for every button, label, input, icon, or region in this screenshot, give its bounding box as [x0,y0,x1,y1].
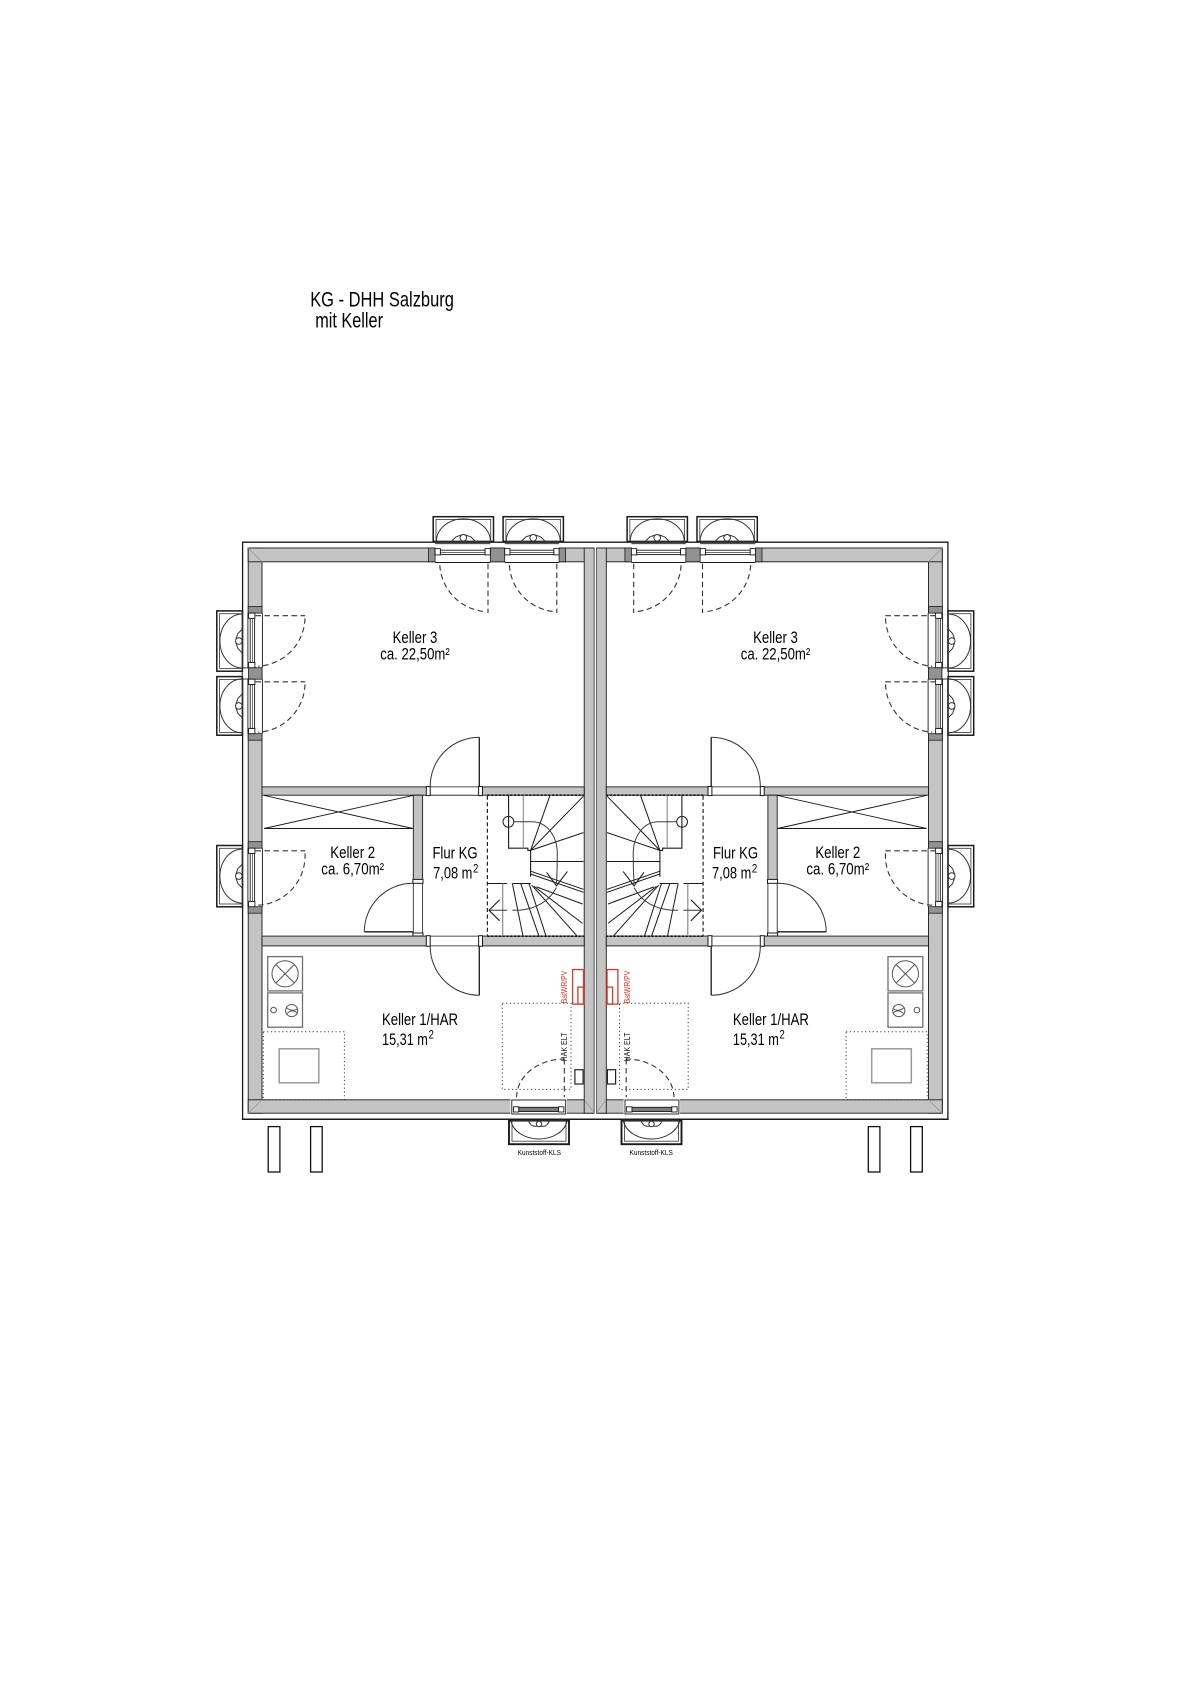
svg-text:Keller 2: Keller 2 [330,844,375,862]
svg-text:ca. 22,50m²: ca. 22,50m² [741,646,811,664]
svg-text:ca. 6,70m²: ca. 6,70m² [806,860,869,878]
svg-text:15,31 m: 15,31 m [382,1031,428,1049]
svg-text:mit Keller: mit Keller [315,310,383,333]
svg-text:2: 2 [779,1030,784,1042]
svg-text:BatWR/PV: BatWR/PV [622,971,632,1004]
svg-text:7,08 m: 7,08 m [433,865,472,883]
svg-text:Flur KG: Flur KG [432,845,477,863]
svg-text:Keller 1/HAR: Keller 1/HAR [382,1011,458,1029]
svg-text:Flur KG: Flur KG [713,845,758,863]
svg-text:2: 2 [473,863,478,875]
svg-text:HAK ELT: HAK ELT [622,1032,632,1062]
svg-text:Keller 3: Keller 3 [753,629,798,647]
svg-text:BatWR/PV: BatWR/PV [559,971,569,1004]
svg-text:HAK ELT: HAK ELT [559,1032,569,1062]
svg-text:Keller 1/HAR: Keller 1/HAR [733,1011,809,1029]
svg-text:Kunststoff-KLS: Kunststoff-KLS [630,1148,673,1157]
svg-text:7,08 m: 7,08 m [712,865,751,883]
svg-text:KG - DHH Salzburg: KG - DHH Salzburg [310,288,454,311]
svg-text:ca. 22,50m²: ca. 22,50m² [380,646,450,664]
svg-text:Kunststoff-KLS: Kunststoff-KLS [518,1148,561,1157]
svg-text:Keller 2: Keller 2 [815,844,860,862]
svg-text:Keller 3: Keller 3 [393,629,438,647]
svg-text:ca. 6,70m²: ca. 6,70m² [321,860,384,878]
svg-text:2: 2 [429,1030,434,1042]
svg-text:15,31 m: 15,31 m [733,1031,779,1049]
svg-text:2: 2 [752,863,757,875]
